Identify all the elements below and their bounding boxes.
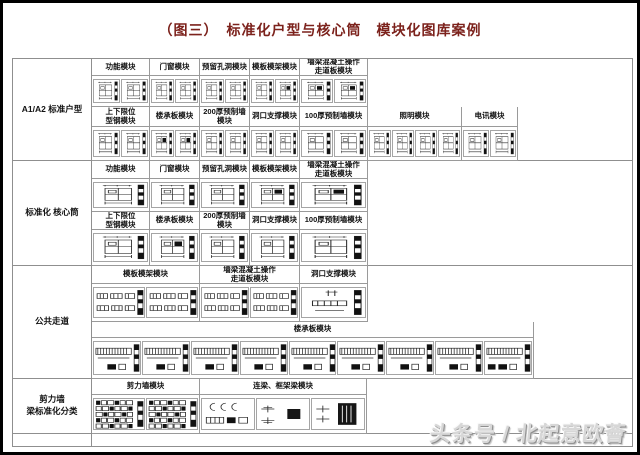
header-row-filler <box>367 379 632 395</box>
module-header: 楼承板模块 <box>150 212 200 230</box>
module-header: 墙梁混凝土操作 走道板模块 <box>300 59 368 76</box>
drawing-cell <box>300 76 368 107</box>
cad-thumbnail-plan <box>201 130 224 157</box>
module-header: 100厚预制墙模块 <box>300 107 368 127</box>
drawing-cell <box>92 76 150 107</box>
drawing-row-filler <box>368 179 632 212</box>
module-drawing-row <box>92 338 632 379</box>
module-header: 洞口支撑模块 <box>250 212 300 230</box>
module-header: 门窗模块 <box>150 59 200 76</box>
drawing-row-filler <box>368 284 632 322</box>
module-drawing-row <box>92 76 632 107</box>
cad-thumbnail-bars <box>250 287 298 318</box>
module-header: 100厚预制墙模块 <box>300 212 368 230</box>
left-column-filler <box>13 434 91 446</box>
drawing-cell <box>92 230 150 266</box>
module-header: 功能模块 <box>92 161 150 179</box>
drawing-cell <box>200 127 250 161</box>
table-section: 功能模块门窗模块预留孔洞模块模板模架模块墙梁混凝土操作 走道板模块上下限位 型钢… <box>92 59 632 161</box>
module-header: 上下限位 型钢模块 <box>92 107 150 127</box>
module-header: 连梁、框架梁模块 <box>200 379 367 395</box>
module-drawing-row <box>92 127 632 161</box>
module-header: 功能模块 <box>92 59 150 76</box>
module-drawing-row <box>92 284 632 322</box>
section-label: 标准化 核心筒 <box>13 161 91 266</box>
drawing-cell <box>200 179 250 212</box>
cad-thumbnail-plan <box>415 130 437 157</box>
cad-thumbnail-clamps <box>201 398 255 430</box>
cad-thumbnail-slab <box>386 341 434 375</box>
drawing-cell <box>200 76 250 107</box>
module-drawing-row <box>92 179 632 212</box>
cad-thumbnail-plan <box>275 130 298 157</box>
drawing-cell <box>300 127 368 161</box>
cad-thumbnail-slab <box>435 341 483 375</box>
drawing-cell <box>150 230 200 266</box>
cad-thumbnail-planD <box>301 79 333 103</box>
module-header-row: 楼承板模块 <box>92 322 632 338</box>
cad-thumbnail-plan <box>251 79 274 103</box>
cad-thumbnail-plan <box>93 130 120 157</box>
page: （图三） 标准化户型与核心筒 模块化图库案例 A1/A2 标准户型标准化 核心筒… <box>0 0 640 455</box>
cad-thumbnail-slab <box>240 341 288 375</box>
module-header: 模板模架模块 <box>250 161 300 179</box>
drawing-cell <box>92 179 150 212</box>
module-header: 门窗模块 <box>150 161 200 179</box>
drawing-cell <box>150 179 200 212</box>
module-header-row: 上下限位 型钢模块楼承板模块200厚预制墙模块洞口支撑模块100厚预制墙模块照明… <box>92 107 632 127</box>
module-header: 200厚预制墙模块 <box>200 107 250 127</box>
table-section: 功能模块门窗模块预留孔洞模块模板模架模块墙梁混凝土操作 走道板模块上下限位 型钢… <box>92 161 632 266</box>
section-label: A1/A2 标准户型 <box>13 59 91 161</box>
cad-thumbnail-stack <box>93 398 145 430</box>
cad-thumbnail-beamblockD <box>311 398 365 430</box>
cad-thumbnail-bars <box>93 287 145 318</box>
module-header-row: 剪力墙模块连梁、框架梁模块 <box>92 379 632 395</box>
cad-thumbnail-plan <box>490 130 516 157</box>
module-header: 楼承板模块 <box>92 322 534 338</box>
module-library-table: A1/A2 标准户型标准化 核心筒公共走道剪力墙 梁标准化分类 功能模块门窗模块… <box>12 58 633 447</box>
module-header: 模板模架模块 <box>250 59 300 76</box>
cad-thumbnail-slab <box>191 341 239 375</box>
cad-thumbnail-plan <box>251 233 298 262</box>
cad-thumbnail-plan <box>175 79 198 103</box>
cad-thumbnail-slabS <box>301 287 366 318</box>
module-header: 电讯模块 <box>462 107 518 127</box>
table-content: 功能模块门窗模块预留孔洞模块模板模架模块墙梁混凝土操作 走道板模块上下限位 型钢… <box>92 59 632 446</box>
header-row-filler <box>368 161 632 179</box>
module-header: 200厚预制墙模块 <box>200 212 250 230</box>
module-header: 墙梁混凝土操作 走道板模块 <box>200 266 300 284</box>
module-header: 墙梁混凝土操作 走道板模块 <box>300 161 368 179</box>
cad-thumbnail-planD <box>251 182 298 208</box>
drawing-cell <box>250 179 300 212</box>
category-column: A1/A2 标准户型标准化 核心筒公共走道剪力墙 梁标准化分类 <box>13 59 92 446</box>
drawing-row-filler <box>368 230 632 266</box>
cad-thumbnail-plan <box>251 130 274 157</box>
module-header: 模板模架模块 <box>92 266 200 284</box>
drawing-cell <box>200 230 250 266</box>
module-header-row: 功能模块门窗模块预留孔洞模块模板模架模块墙梁混凝土操作 走道板模块 <box>92 161 632 179</box>
module-header: 洞口支撑模块 <box>300 266 368 284</box>
module-drawing-row <box>92 230 632 266</box>
cad-thumbnail-planD <box>151 233 198 262</box>
drawing-cell <box>200 395 367 434</box>
module-header: 剪力墙模块 <box>92 379 200 395</box>
cad-thumbnail-plan <box>93 233 148 262</box>
cad-thumbnail-bars <box>201 287 249 318</box>
drawing-cell <box>300 230 368 266</box>
cad-thumbnail-plan <box>121 79 148 103</box>
section-label: 剪力墙 梁标准化分类 <box>13 379 91 434</box>
cad-thumbnail-slab <box>289 341 337 375</box>
header-row-filler <box>368 266 632 284</box>
drawing-cell <box>92 395 200 434</box>
section-label: 公共走道 <box>13 266 91 379</box>
cad-thumbnail-slab <box>337 341 385 375</box>
cad-thumbnail-plan <box>151 182 198 208</box>
drawing-cell <box>92 127 150 161</box>
header-row-filler <box>368 212 632 230</box>
drawing-cell <box>300 284 368 322</box>
cad-thumbnail-plan <box>463 130 489 157</box>
drawing-cell <box>92 338 534 379</box>
cad-thumbnail-beamblock <box>256 398 310 430</box>
cad-thumbnail-plan <box>201 182 248 208</box>
watermark: 头条号 / 北起意欧薈 <box>429 418 629 448</box>
module-header-row: 模板模架模块墙梁混凝土操作 走道板模块洞口支撑模块 <box>92 266 632 284</box>
page-title: （图三） 标准化户型与核心筒 模块化图库案例 <box>3 20 637 40</box>
cad-thumbnail-plan <box>151 79 174 103</box>
cad-thumbnail-plan <box>201 233 248 262</box>
cad-thumbnail-plan <box>392 130 414 157</box>
cad-thumbnail-slab <box>142 341 190 375</box>
module-header: 照明模块 <box>368 107 462 127</box>
drawing-cell <box>150 127 200 161</box>
drawing-cell <box>368 127 462 161</box>
drawing-cell <box>250 230 300 266</box>
cad-thumbnail-plan <box>334 130 366 157</box>
cad-thumbnail-plan <box>301 130 333 157</box>
cad-thumbnail-plan <box>301 233 366 262</box>
drawing-cell <box>200 284 300 322</box>
module-header: 楼承板模块 <box>150 107 200 127</box>
cad-thumbnail-stack <box>146 398 198 430</box>
cad-thumbnail-planD <box>275 79 298 103</box>
cad-thumbnail-planD <box>175 130 198 157</box>
header-row-filler <box>518 107 632 127</box>
drawing-cell <box>92 284 200 322</box>
header-row-filler <box>534 322 632 338</box>
drawing-cell <box>250 76 300 107</box>
cad-thumbnail-plan <box>201 79 224 103</box>
drawing-row-filler <box>368 76 632 107</box>
cad-thumbnail-plan <box>369 130 391 157</box>
cad-thumbnail-bars <box>146 287 198 318</box>
module-header: 预留孔洞模块 <box>200 59 250 76</box>
module-header: 洞口支撑模块 <box>250 107 300 127</box>
cad-thumbnail-planD <box>334 79 366 103</box>
drawing-row-filler <box>518 127 632 161</box>
drawing-cell <box>250 127 300 161</box>
cad-thumbnail-planD <box>151 130 174 157</box>
cad-thumbnail-plan <box>121 130 148 157</box>
cad-thumbnail-plan <box>93 79 120 103</box>
table-section: 模板模架模块墙梁混凝土操作 走道板模块洞口支撑模块楼承板模块 <box>92 266 632 379</box>
cad-thumbnail-slabD <box>484 341 532 375</box>
module-header: 上下限位 型钢模块 <box>92 212 150 230</box>
cad-thumbnail-plan <box>225 130 248 157</box>
cad-thumbnail-plan <box>93 182 148 208</box>
cad-thumbnail-planD <box>301 182 366 208</box>
cad-thumbnail-plan <box>225 79 248 103</box>
header-row-filler <box>368 59 632 76</box>
module-header-row: 功能模块门窗模块预留孔洞模块模板模架模块墙梁混凝土操作 走道板模块 <box>92 59 632 76</box>
cad-thumbnail-slab <box>93 341 141 375</box>
module-header: 预留孔洞模块 <box>200 161 250 179</box>
drawing-cell <box>150 76 200 107</box>
drawing-row-filler <box>534 338 632 379</box>
module-header-row: 上下限位 型钢模块楼承板模块200厚预制墙模块洞口支撑模块100厚预制墙模块 <box>92 212 632 230</box>
drawing-cell <box>300 179 368 212</box>
cad-thumbnail-plan <box>438 130 460 157</box>
drawing-cell <box>462 127 518 161</box>
